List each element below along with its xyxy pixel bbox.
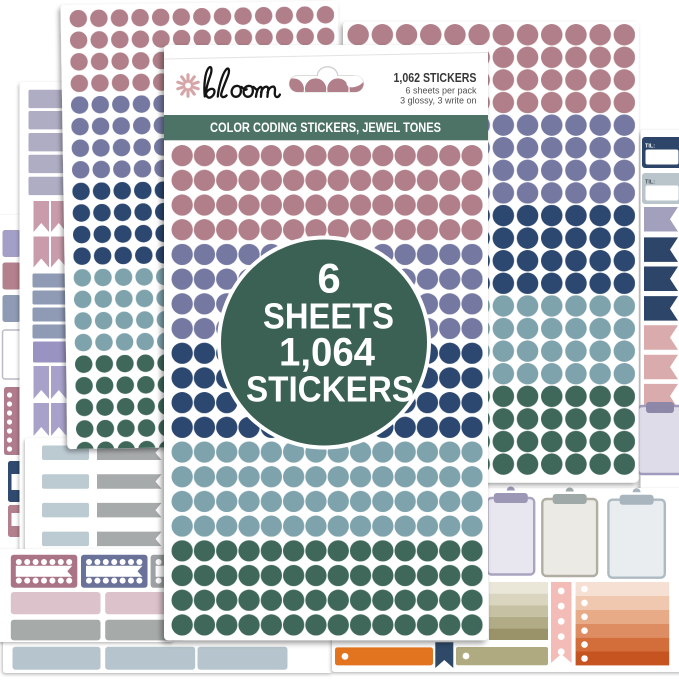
svg-text:TIL:: TIL: xyxy=(645,144,655,150)
svg-text:STICKERS: STICKERS xyxy=(246,369,414,410)
svg-text:3 glossy, 3 write on: 3 glossy, 3 write on xyxy=(400,95,476,105)
svg-text:1,062 STICKERS: 1,062 STICKERS xyxy=(394,70,477,85)
svg-text:COLOR CODING STICKERS, JEWEL T: COLOR CODING STICKERS, JEWEL TONES xyxy=(210,120,441,135)
svg-text:TIL:: TIL: xyxy=(645,180,655,186)
svg-text:6 sheets per pack: 6 sheets per pack xyxy=(405,86,477,96)
